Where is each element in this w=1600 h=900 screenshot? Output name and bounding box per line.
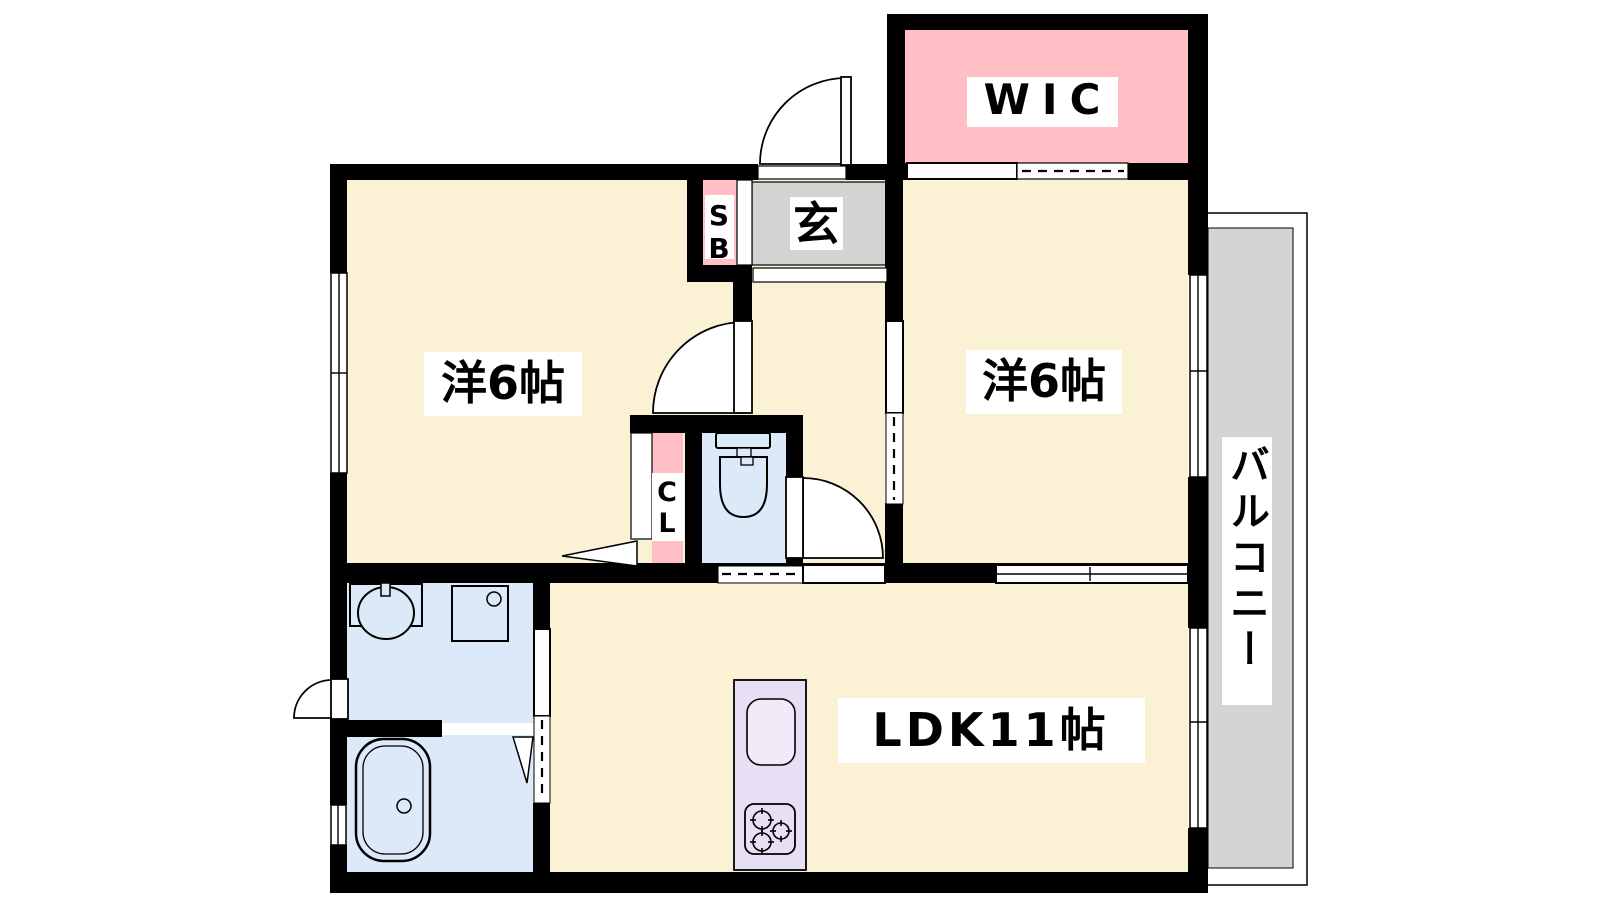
wall-segment [687,265,752,282]
wall-segment [733,282,752,322]
toilet-flush [737,448,751,457]
ldk-sliding-door-leaf [803,565,885,583]
balcony-label: バルコニー [1223,444,1269,674]
wall-segment [786,433,803,478]
wall-segment [1188,14,1208,275]
bathroom-window [331,805,346,845]
wall-segment [330,164,347,273]
right-bedroom-sliding-door-track [886,413,903,504]
wall-segment [533,583,550,630]
washroom-exterior-door-leaf [331,679,348,719]
toilet-door-leaf [786,477,803,558]
wall-segment [1188,477,1208,628]
closet-label: CL [652,477,683,539]
bathroom-floor [345,735,535,874]
wall-segment [887,14,1208,30]
washbasin-faucet [381,583,390,596]
kitchen-sink-icon [747,699,795,765]
right-bedroom-balcony-window [1190,275,1207,477]
wall-segment [533,803,550,873]
shoe-box-front-panel [737,180,752,265]
toilet-seat-hinge [741,457,753,465]
toilet-tank [716,433,770,448]
entrance-step [753,268,887,282]
wall-segment [1128,163,1188,180]
wall-segment [630,415,803,433]
toilet-icon [716,433,770,517]
left-bedroom-door-leaf [734,321,752,413]
right-bedroom-label: 洋6帖 [982,354,1106,408]
ldk-label: LDK11帖 [872,703,1109,757]
entrance-sill [758,166,846,179]
left-bedroom-window [331,273,347,473]
wall-segment [685,433,702,565]
wall-segment [687,164,703,282]
right-bedroom-sliding-door-leaf [886,321,903,413]
floor-plan: WIC 玄 SB 洋6帖 洋6帖 CL LDK11帖 バルコニー [0,0,1600,900]
wall-segment [330,720,442,737]
left-bedroom-label: 洋6帖 [441,356,565,410]
kitchen-counter [734,680,806,870]
wall-segment [885,180,903,322]
wall-segment [330,872,1208,893]
wic-label: WIC [984,75,1113,124]
entrance-door-leaf [841,77,851,165]
wic-sliding-door-leaf [907,163,1017,179]
wall-segment [887,14,905,180]
toilet-bowl [720,457,767,517]
closet-door-panel [631,433,652,539]
wall-segment [885,503,903,565]
wall-segment [887,163,907,180]
washroom-sliding-door-leaf [534,629,550,716]
entrance-label: 玄 [793,197,839,251]
ldk-balcony-window [1190,628,1207,828]
shoe-box-label: SB [703,199,736,265]
wall-segment [330,845,347,893]
floor-plan-svg: WIC 玄 SB 洋6帖 洋6帖 CL LDK11帖 バルコニー [0,0,1600,900]
